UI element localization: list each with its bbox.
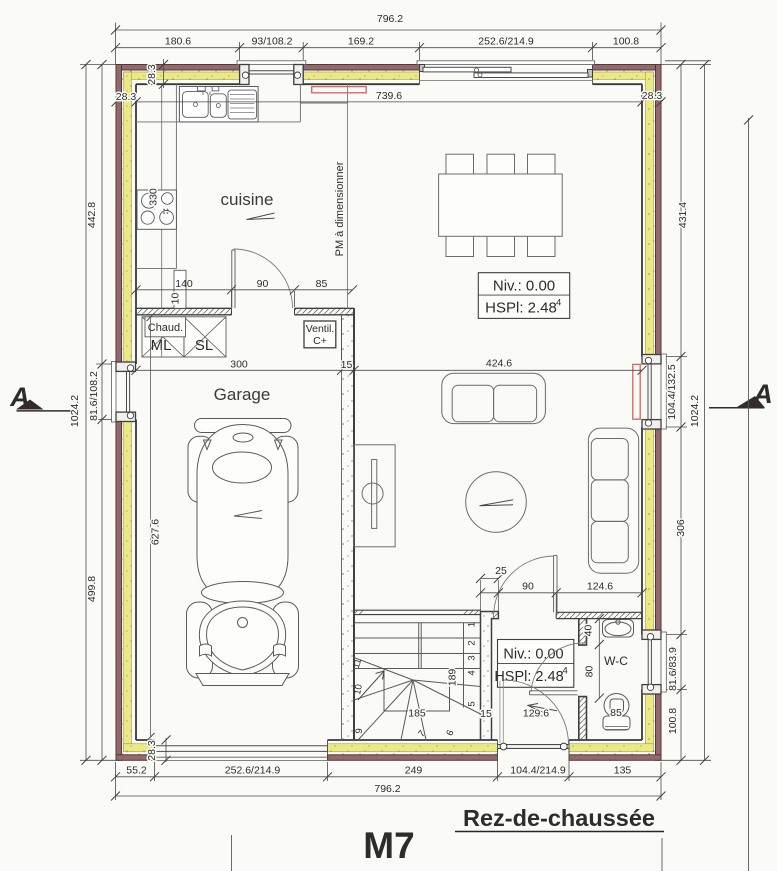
svg-text:15: 15 [341,359,353,371]
svg-text:9: 9 [354,728,365,734]
svg-text:SL: SL [195,337,213,354]
svg-text:85: 85 [610,707,622,719]
svg-text:Ventil.: Ventil. [306,323,335,335]
svg-text:424.6: 424.6 [486,358,512,370]
svg-text:81.6/108.2: 81.6/108.2 [88,371,100,421]
svg-text:1024.2: 1024.2 [689,395,701,427]
svg-text:28.3: 28.3 [146,740,158,761]
svg-text:1: 1 [467,622,478,627]
svg-text:300: 300 [230,359,248,371]
svg-text:28.3: 28.3 [146,64,158,85]
svg-text:135: 135 [614,765,632,777]
svg-text:2: 2 [467,640,478,645]
svg-text:Niv.: 0.00: Niv.: 0.00 [493,277,555,294]
svg-text:Garage: Garage [214,385,271,404]
svg-text:93/108.2: 93/108.2 [252,36,293,48]
svg-text:100.8: 100.8 [613,36,639,48]
svg-text:90: 90 [257,278,269,290]
svg-text:330: 330 [148,188,160,206]
svg-text:15: 15 [480,708,492,720]
svg-text:100.8: 100.8 [667,708,679,734]
svg-text:W-C: W-C [604,654,628,668]
svg-text:252.6/214.9: 252.6/214.9 [225,765,281,777]
svg-text:129.6: 129.6 [523,708,549,720]
svg-text:40: 40 [583,625,595,637]
svg-text:ML: ML [151,337,172,354]
svg-text:104.4/214.9: 104.4/214.9 [510,765,566,777]
svg-text:HSPl: 2.48: HSPl: 2.48 [485,300,557,317]
svg-text:Chaud.: Chaud. [148,322,183,334]
svg-text:C+: C+ [313,335,327,347]
svg-text:189: 189 [447,669,459,687]
svg-text:124.6: 124.6 [587,581,613,593]
svg-text:169.2: 169.2 [348,36,374,48]
svg-text:180.6: 180.6 [165,36,191,48]
svg-text:499.8: 499.8 [86,576,98,602]
svg-text:M7: M7 [363,825,414,866]
svg-text:185: 185 [408,708,426,720]
svg-text:55.2: 55.2 [126,765,147,777]
svg-text:81.6/83.9: 81.6/83.9 [667,647,679,691]
svg-text:306: 306 [675,519,687,537]
svg-text:252.6/214.9: 252.6/214.9 [478,36,534,48]
svg-text:80: 80 [584,666,596,678]
svg-text:796.2: 796.2 [374,783,400,795]
svg-text:85: 85 [316,278,328,290]
svg-text:249: 249 [405,765,423,777]
svg-text:cuisine: cuisine [221,190,274,209]
svg-text:739.6: 739.6 [376,90,402,102]
svg-text:90: 90 [522,581,534,593]
svg-text:1024.2: 1024.2 [69,395,81,427]
svg-text:Niv.: 0.00: Niv.: 0.00 [503,646,563,662]
svg-text:28.3: 28.3 [116,91,137,103]
svg-text:Rez-de-chaussée: Rez-de-chaussée [463,805,655,831]
svg-text:4: 4 [563,666,568,677]
svg-text:28.3: 28.3 [642,90,663,102]
svg-text:25: 25 [495,565,507,577]
svg-text:10: 10 [170,293,182,305]
svg-text:104.4/132.5: 104.4/132.5 [666,364,678,420]
svg-text:442.8: 442.8 [86,202,98,228]
svg-text:10: 10 [352,683,365,695]
svg-text:796.2: 796.2 [377,13,403,25]
svg-text:4: 4 [556,298,561,309]
svg-text:3: 3 [467,655,478,660]
svg-text:5: 5 [467,701,478,706]
svg-text:4: 4 [467,670,478,675]
svg-text:627.6: 627.6 [150,519,162,545]
svg-text:140: 140 [175,278,193,290]
svg-text:HSPl: 2.48: HSPl: 2.48 [494,669,563,685]
svg-text:431.4: 431.4 [677,202,689,228]
svg-text:PM à dimensionner: PM à dimensionner [334,161,346,256]
